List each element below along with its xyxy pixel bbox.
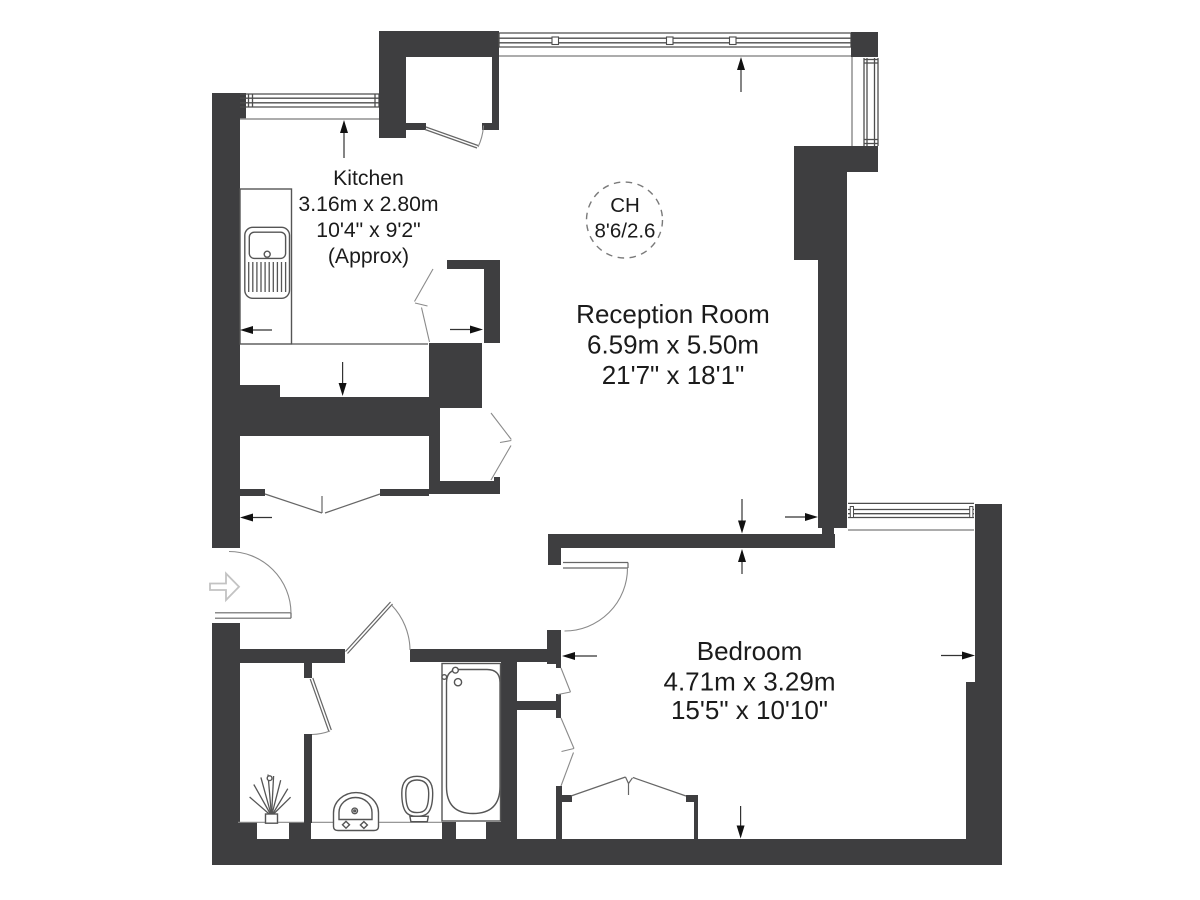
- svg-text:Kitchen: Kitchen: [333, 167, 404, 190]
- svg-text:15'5" x 10'10": 15'5" x 10'10": [671, 695, 828, 725]
- svg-text:3.16m x 2.80m: 3.16m x 2.80m: [298, 193, 438, 216]
- svg-text:4.71m x 3.29m: 4.71m x 3.29m: [664, 667, 836, 697]
- svg-text:Bedroom: Bedroom: [697, 636, 803, 666]
- svg-text:21'7" x 18'1": 21'7" x 18'1": [602, 360, 745, 390]
- svg-text:6.59m x 5.50m: 6.59m x 5.50m: [587, 330, 759, 360]
- svg-text:CH: CH: [610, 194, 640, 217]
- svg-text:8'6/2.6: 8'6/2.6: [595, 220, 656, 243]
- svg-text:10'4" x 9'2": 10'4" x 9'2": [316, 219, 420, 242]
- svg-text:Reception Room: Reception Room: [576, 299, 770, 329]
- svg-text:(Approx): (Approx): [328, 245, 409, 268]
